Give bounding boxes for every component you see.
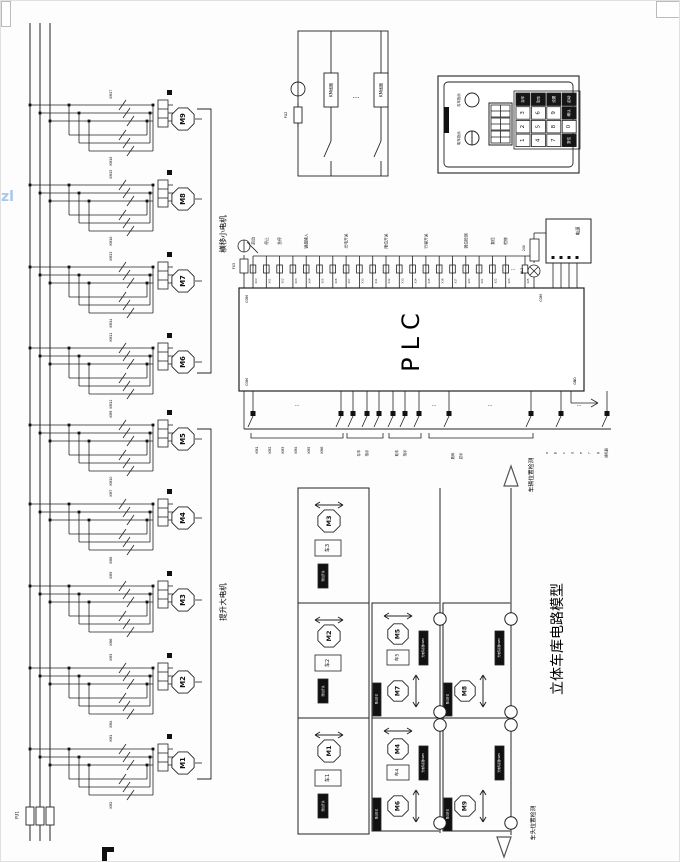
psu-pin [560,256,563,259]
sensor-label: 光电传感器PWM [497,638,501,657]
keypad-key-label: 6 [535,111,541,115]
ellipsis: ··· [295,403,300,409]
rail-terminal-box [530,239,539,261]
plc-com-top-left: COM [245,295,249,303]
plc-com-bottom-left: COM [245,378,249,386]
junction-dot [152,347,155,350]
input-terminal-label: X13 [400,278,404,283]
coil-box-fuse-label: FU2 [284,112,288,119]
sensor-label: 光电传感器PWM [421,638,425,657]
power-supply-label: 电源 [575,226,582,235]
motor-label: M8 [462,686,469,696]
junction-dot [152,667,155,670]
ellipsis: ··· [577,403,582,409]
output-group-label: 指示 [364,449,369,456]
junction-dot [78,432,81,435]
input-terminal-label: X12 [387,278,391,283]
junction-dot [78,192,81,195]
contactor-label: KM6 [109,639,113,646]
output-terminal [365,411,370,416]
store-indicator-lamp [465,93,479,107]
slot-label: 车4 [394,769,401,777]
junction-dot [68,104,71,107]
output-terminal [447,411,452,416]
input-group-label: 停止 [264,237,269,245]
contactor-label: KM4 [109,721,113,728]
junction-dot [88,363,91,366]
keypad-key-label: 2 [520,125,526,129]
sheet-mark [102,847,114,852]
output-group-label: e [579,452,583,454]
junction-dot [78,675,81,678]
fuse-symbol [36,807,44,825]
output-terminal [417,411,422,416]
contactor-label: KM16 [109,237,113,246]
operator-panel: 存车指示 取车指示 存车取车设置启动369确认2580147复位 [438,76,580,173]
junction-dot [146,120,149,123]
junction-dot [29,424,32,427]
junction-dot [88,519,91,522]
output-group-label: 数码 [450,452,455,459]
output-group-label: 指示 [402,449,407,456]
junction-dot [39,274,42,277]
terminal-square [167,170,172,175]
junction-dot [78,756,81,759]
input-terminal-label: X06 [334,278,338,283]
junction-dot [152,424,155,427]
sensor-label: 限位开关 [446,808,450,819]
keypad-key-label: 4 [535,138,541,142]
junction-dot [29,104,32,107]
motor-label: M7 [179,275,187,287]
junction-dot [146,601,149,604]
input-terminal-label: X00 [254,278,258,283]
plc-gnd-pin: GND [573,377,577,385]
input-group-label: 光电开关 [344,233,349,248]
input-terminal-label: X23 [507,278,511,283]
keypad-key-label: 确认 [566,109,571,117]
junction-dot [88,601,91,604]
junction-dot [49,601,52,604]
cad-schematic-page: zl FU1 KM1KM2M1KM3KM4M2KM5KM6M3KM7KM8M4K… [0,0,680,862]
junction-dot [39,432,42,435]
psu-pin [576,256,579,259]
motor-label: M6 [179,356,187,368]
contactor-label: KM18 [109,157,113,166]
junction-dot [149,593,152,596]
psu-pin [552,256,555,259]
motor-label: M1 [325,745,333,756]
sensor-label: 光电传感器PWM [497,753,501,772]
slot-label: 车3 [324,544,331,552]
input-terminal-label: X01 [267,278,271,283]
panel-connector-bar [444,107,449,133]
sensor-label: 限位开关 [321,685,325,696]
input-group-label: 启动 [251,237,256,245]
junction-dot [29,266,32,269]
junction-dot [149,192,152,195]
roller-wheel [434,613,446,625]
motor-label: M5 [179,433,187,445]
junction-dot [149,355,152,358]
input-terminal-label: X11 [374,278,378,283]
input-group-label: 急停 [277,237,282,245]
keypad-key-label: 8 [551,124,557,128]
contactor-label: KM12 [109,400,113,409]
terminal-square [167,333,172,338]
junction-dot [49,120,52,123]
input-terminal-label: X05 [321,278,325,283]
input-group-label: 检修 [503,237,508,245]
junction-dot [78,112,81,115]
input-terminal-label: X02 [281,278,285,283]
junction-dot [88,683,91,686]
junction-dot [152,104,155,107]
junction-dot [149,112,152,115]
fuse-symbol [46,807,54,825]
junction-dot [68,748,71,751]
motor-label: M9 [179,113,187,125]
output-group-label: 取车 [394,449,399,456]
junction-dot [68,347,71,350]
junction-dot [78,355,81,358]
output-group-label: KM1 [255,447,259,454]
contactor-label: KM10 [109,477,113,486]
output-terminal [403,411,408,416]
output-terminal [251,411,256,416]
roller-wheel [505,817,517,829]
junction-dot [146,683,149,686]
roller-wheel [434,817,446,829]
input-group-label: 到位检测 [463,233,468,248]
junction-dot [68,667,71,670]
keypad-key-label: 取车 [535,95,540,103]
roller-wheel [505,719,517,731]
corner-artifact-top-right [657,2,680,18]
motor-label: M8 [179,193,187,205]
output-group-label: KM5 [307,447,311,454]
keypad-key-label: 启动 [566,95,571,103]
sensor-label: 限位开关 [446,693,450,704]
keypad-key-label: 1 [520,139,526,143]
junction-dot [39,192,42,195]
sensor-label: 限位开关 [375,808,379,819]
sensor-label: 限位开关 [375,693,379,704]
junction-dot [78,511,81,514]
keypad-key-label: 9 [551,111,557,115]
junction-dot [29,748,32,751]
motor-label: M2 [179,676,187,688]
junction-dot [68,266,71,269]
contactor-label: KM11 [109,333,113,342]
fuse-symbol [26,807,34,825]
terminal-square [167,653,172,658]
output-terminal [605,411,610,416]
output-terminal [351,411,356,416]
junction-dot [29,585,32,588]
junction-dot [146,519,149,522]
junction-dot [29,347,32,350]
contactor-label: KM14 [109,319,113,328]
input-terminal-label: X20 [467,278,471,283]
junction-dot [146,200,149,203]
roller-wheel [505,613,517,625]
junction-dot [68,503,71,506]
junction-dot [49,282,52,285]
keypad-key-label: 5 [535,124,541,128]
output-group-label: 存车 [356,449,361,456]
sensor-label: 限位开关 [321,570,325,581]
junction-dot [29,667,32,670]
junction-dot [68,424,71,427]
output-terminal [559,411,564,416]
junction-dot [39,511,42,514]
junction-dot [78,593,81,596]
motor-label: M9 [462,801,469,811]
junction-dot [39,756,42,759]
output-group-label: 蜂鸣器 [604,447,609,457]
sheet-mark [102,852,107,861]
motor-label: M1 [179,757,187,769]
sensor-label: 光电传感器PWM [421,753,425,772]
plc-com-top-right: COM [539,294,543,302]
input-terminal-label: X25 [526,278,530,283]
main-fuse-label: FU1 [15,811,20,819]
junction-dot [149,675,152,678]
input-group-label: 复位 [490,237,495,245]
contactor-label: KM2 [109,802,113,809]
coil-label-1: KM线圈 [328,83,334,97]
plc-left-fuse-label: FU3 [232,263,236,269]
contactor-label: KM8 [109,557,113,564]
input-terminal-label: X16 [440,278,444,283]
ellipsis: ··· [511,267,516,273]
junction-dot [152,585,155,588]
output-terminal [391,411,396,416]
motor-label: M7 [395,686,402,696]
junction-dot [152,748,155,751]
junction-dot [49,440,52,443]
roller-wheel [505,706,517,718]
junction-dot [149,756,152,759]
output-group-label: 显示 [459,452,463,459]
junction-dot [78,274,81,277]
output-group-label: KM3 [281,447,285,454]
junction-dot [152,184,155,187]
motor-label: M2 [325,631,333,642]
junction-dot [39,112,42,115]
input-terminal-label: X14 [414,278,418,283]
junction-dot [88,764,91,767]
contactor-label: KM7 [109,490,113,497]
output-group-label: d [571,452,575,454]
junction-dot [152,503,155,506]
contactor-label: KM9 [109,411,113,418]
junction-dot [88,282,91,285]
sensor-label-bottom: 车头位置检测 [529,805,537,840]
motor-label: M5 [395,629,402,639]
coil-label-2: KM线圈 [378,83,384,97]
junction-dot [68,184,71,187]
terminal-square [167,90,172,95]
junction-dot [49,683,52,686]
slot-label: 车5 [394,654,401,662]
junction-dot [49,519,52,522]
output-group-label: c [562,452,566,454]
junction-dot [68,585,71,588]
junction-dot [88,440,91,443]
motor-label: M3 [179,594,187,606]
junction-dot [149,511,152,514]
ellipsis: ··· [488,403,493,409]
contactor-label: KM13 [109,252,113,261]
sensor-label: 限位开关 [321,800,325,811]
input-group-label: 限位开关 [384,233,389,248]
junction-dot [152,266,155,269]
motor-label: M3 [325,516,333,527]
junction-dot [149,274,152,277]
motor-label: M6 [395,801,402,811]
junction-dot [49,764,52,767]
keypad-key-label: 7 [551,138,557,142]
junction-dot [146,764,149,767]
terminal-square [167,734,172,739]
junction-dot [88,120,91,123]
rail-24v-label: 24V [522,244,526,251]
output-terminal [529,411,534,416]
input-terminal-label: X03 [294,278,298,283]
motor-label: M4 [179,512,187,524]
keypad-key-label: 设置 [551,95,556,103]
terminal-square [167,252,172,257]
input-terminal-label: X21 [480,278,484,283]
output-group-label: b [554,452,558,454]
output-group-label: KM6 [320,447,324,454]
store-indicator-label: 存车指示 [456,93,461,107]
junction-dot [49,200,52,203]
drawing-title: 立体车库电路模型 [549,583,566,695]
power-lamp-label: HL2 [520,268,524,274]
group-label-lift: 提升大电机 [218,583,228,621]
sensor-label-top: 车辆位置检测 [527,457,535,492]
junction-dot [39,675,42,678]
junction-dot [146,440,149,443]
output-group-label: KM2 [268,447,272,454]
ellipsis: ··· [432,403,437,409]
contactor-label: KM1 [109,735,113,742]
terminal-square [167,489,172,494]
roller-wheel [434,719,446,731]
slot-label: 车2 [324,659,331,667]
motor-label: M4 [395,744,402,754]
input-terminal-label: X10 [361,278,365,283]
keypad-key-label: 复位 [566,136,571,144]
input-terminal-label: X15 [427,278,431,283]
plc-label: PLC [397,306,425,372]
input-group-label: 键盘输入 [304,233,309,248]
contactor-label: KM3 [109,654,113,661]
junction-dot [149,432,152,435]
ellipsis: ··· [353,94,360,102]
output-terminal [377,411,382,416]
output-terminal [339,411,344,416]
group-label-traverse: 横移小电机 [218,215,228,253]
junction-dot [39,593,42,596]
input-terminal-label: X17 [454,278,458,283]
contactor-label: KM5 [109,572,113,579]
roller-wheel [434,706,446,718]
keypad-key-label: 3 [520,111,526,115]
fuse-symbol [240,259,248,273]
corner-artifact-top-left [2,2,11,27]
output-group-label: a [545,452,549,454]
junction-dot [39,355,42,358]
schematic-canvas: zl FU1 KM1KM2M1KM3KM4M2KM5KM6M3KM7KM8M4K… [1,1,680,862]
keypad-key-label: 存车 [520,95,525,103]
junction-dot [49,363,52,366]
input-terminal-label: X04 [307,278,311,283]
slot-label: 车1 [324,774,331,782]
retrieve-indicator-label: 取车指示 [456,131,461,145]
display-digits [491,105,510,143]
junction-dot [29,503,32,506]
input-terminal-label: X07 [347,278,351,283]
keypad-key-label: 0 [566,124,572,128]
terminal-square [167,571,172,576]
watermark-text: zl [1,189,14,205]
terminal-square [167,410,172,415]
fuse-symbol [294,107,302,123]
junction-dot [146,363,149,366]
output-group-label: KM4 [294,447,298,454]
input-group-label: 行程开关 [423,233,428,248]
junction-dot [88,200,91,203]
junction-dot [29,184,32,187]
output-group-label: g [596,452,600,454]
psu-pin [568,256,571,259]
contactor-label: KM17 [109,90,113,99]
input-terminal-label: X22 [494,278,498,283]
junction-dot [146,282,149,285]
contactor-label: KM15 [109,170,113,179]
